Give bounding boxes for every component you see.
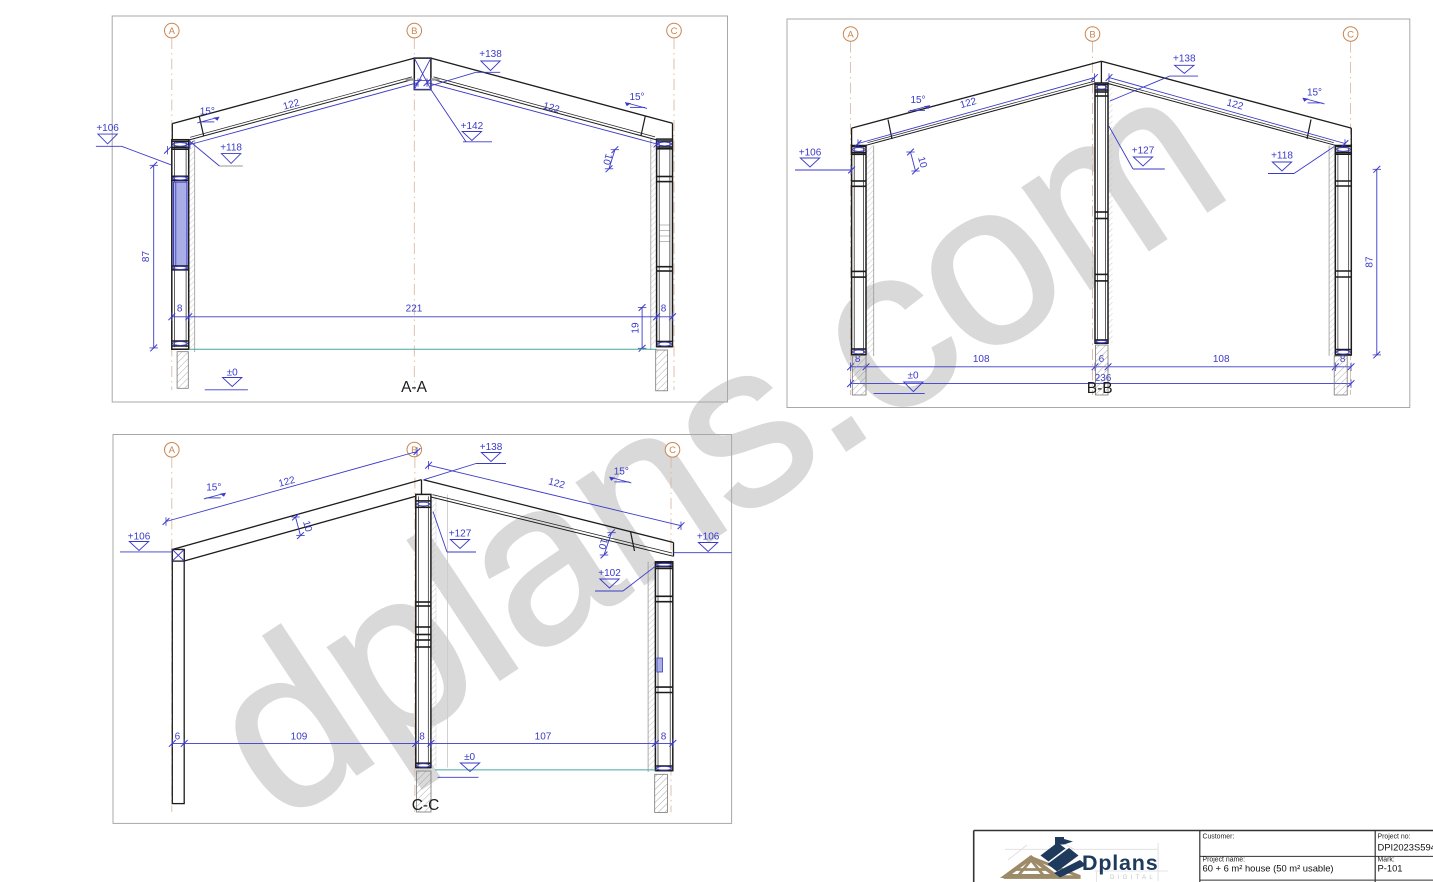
svg-text:15°: 15°: [200, 107, 215, 118]
svg-text:+127: +127: [449, 529, 472, 540]
svg-text:+106: +106: [799, 148, 822, 159]
svg-text:A: A: [169, 26, 176, 37]
svg-text:15°: 15°: [614, 467, 629, 478]
svg-text:+138: +138: [479, 49, 502, 60]
svg-text:+142: +142: [461, 121, 484, 132]
svg-text:8: 8: [177, 303, 183, 314]
svg-text:221: 221: [406, 303, 423, 314]
svg-text:108: 108: [1213, 354, 1230, 365]
svg-text:+102: +102: [598, 568, 621, 579]
svg-text:A-A: A-A: [401, 379, 428, 396]
svg-text:87: 87: [1364, 256, 1375, 268]
svg-text:Customer:: Customer:: [1203, 834, 1235, 841]
svg-text:±0: ±0: [464, 752, 475, 763]
svg-text:B-B: B-B: [1087, 380, 1113, 397]
svg-text:109: 109: [291, 732, 308, 743]
svg-text:±0: ±0: [907, 370, 918, 381]
svg-text:C: C: [1347, 29, 1354, 40]
svg-text:15°: 15°: [1307, 88, 1322, 99]
svg-text:+118: +118: [1271, 151, 1293, 162]
svg-text:C: C: [669, 445, 676, 456]
svg-text:60 + 6 m² house (50 m² usable): 60 + 6 m² house (50 m² usable): [1203, 863, 1334, 874]
svg-text:15°: 15°: [629, 92, 644, 103]
svg-text:15°: 15°: [206, 483, 221, 494]
svg-text:15°: 15°: [910, 95, 925, 106]
svg-text:B: B: [1089, 29, 1095, 40]
svg-text:P-101: P-101: [1378, 863, 1403, 874]
svg-text:B: B: [411, 26, 417, 37]
svg-text:Project no:: Project no:: [1378, 834, 1411, 841]
svg-text:+138: +138: [1173, 54, 1196, 65]
svg-text:108: 108: [973, 354, 990, 365]
svg-text:107: 107: [535, 732, 552, 743]
svg-text:8: 8: [661, 732, 667, 743]
svg-text:87: 87: [141, 251, 152, 263]
svg-text:8: 8: [419, 732, 425, 743]
svg-text:A: A: [847, 29, 854, 40]
svg-text:±0: ±0: [227, 367, 238, 378]
svg-text:+106: +106: [697, 532, 720, 543]
svg-text:+106: +106: [96, 123, 119, 134]
svg-text:A: A: [169, 445, 176, 456]
svg-text:+106: +106: [128, 532, 151, 543]
svg-text:+118: +118: [220, 143, 242, 154]
svg-text:C: C: [671, 26, 678, 37]
svg-text:DIGITAL: DIGITAL: [1110, 874, 1156, 881]
svg-text:DPI2023S5943: DPI2023S5943: [1378, 842, 1433, 853]
svg-text:+138: +138: [480, 442, 503, 453]
svg-text:Dplans: Dplans: [1082, 851, 1158, 875]
svg-text:8: 8: [661, 303, 667, 314]
svg-text:+127: +127: [1132, 146, 1155, 157]
svg-text:C-C: C-C: [412, 797, 440, 814]
svg-text:6: 6: [175, 732, 181, 743]
svg-text:19: 19: [631, 322, 642, 334]
